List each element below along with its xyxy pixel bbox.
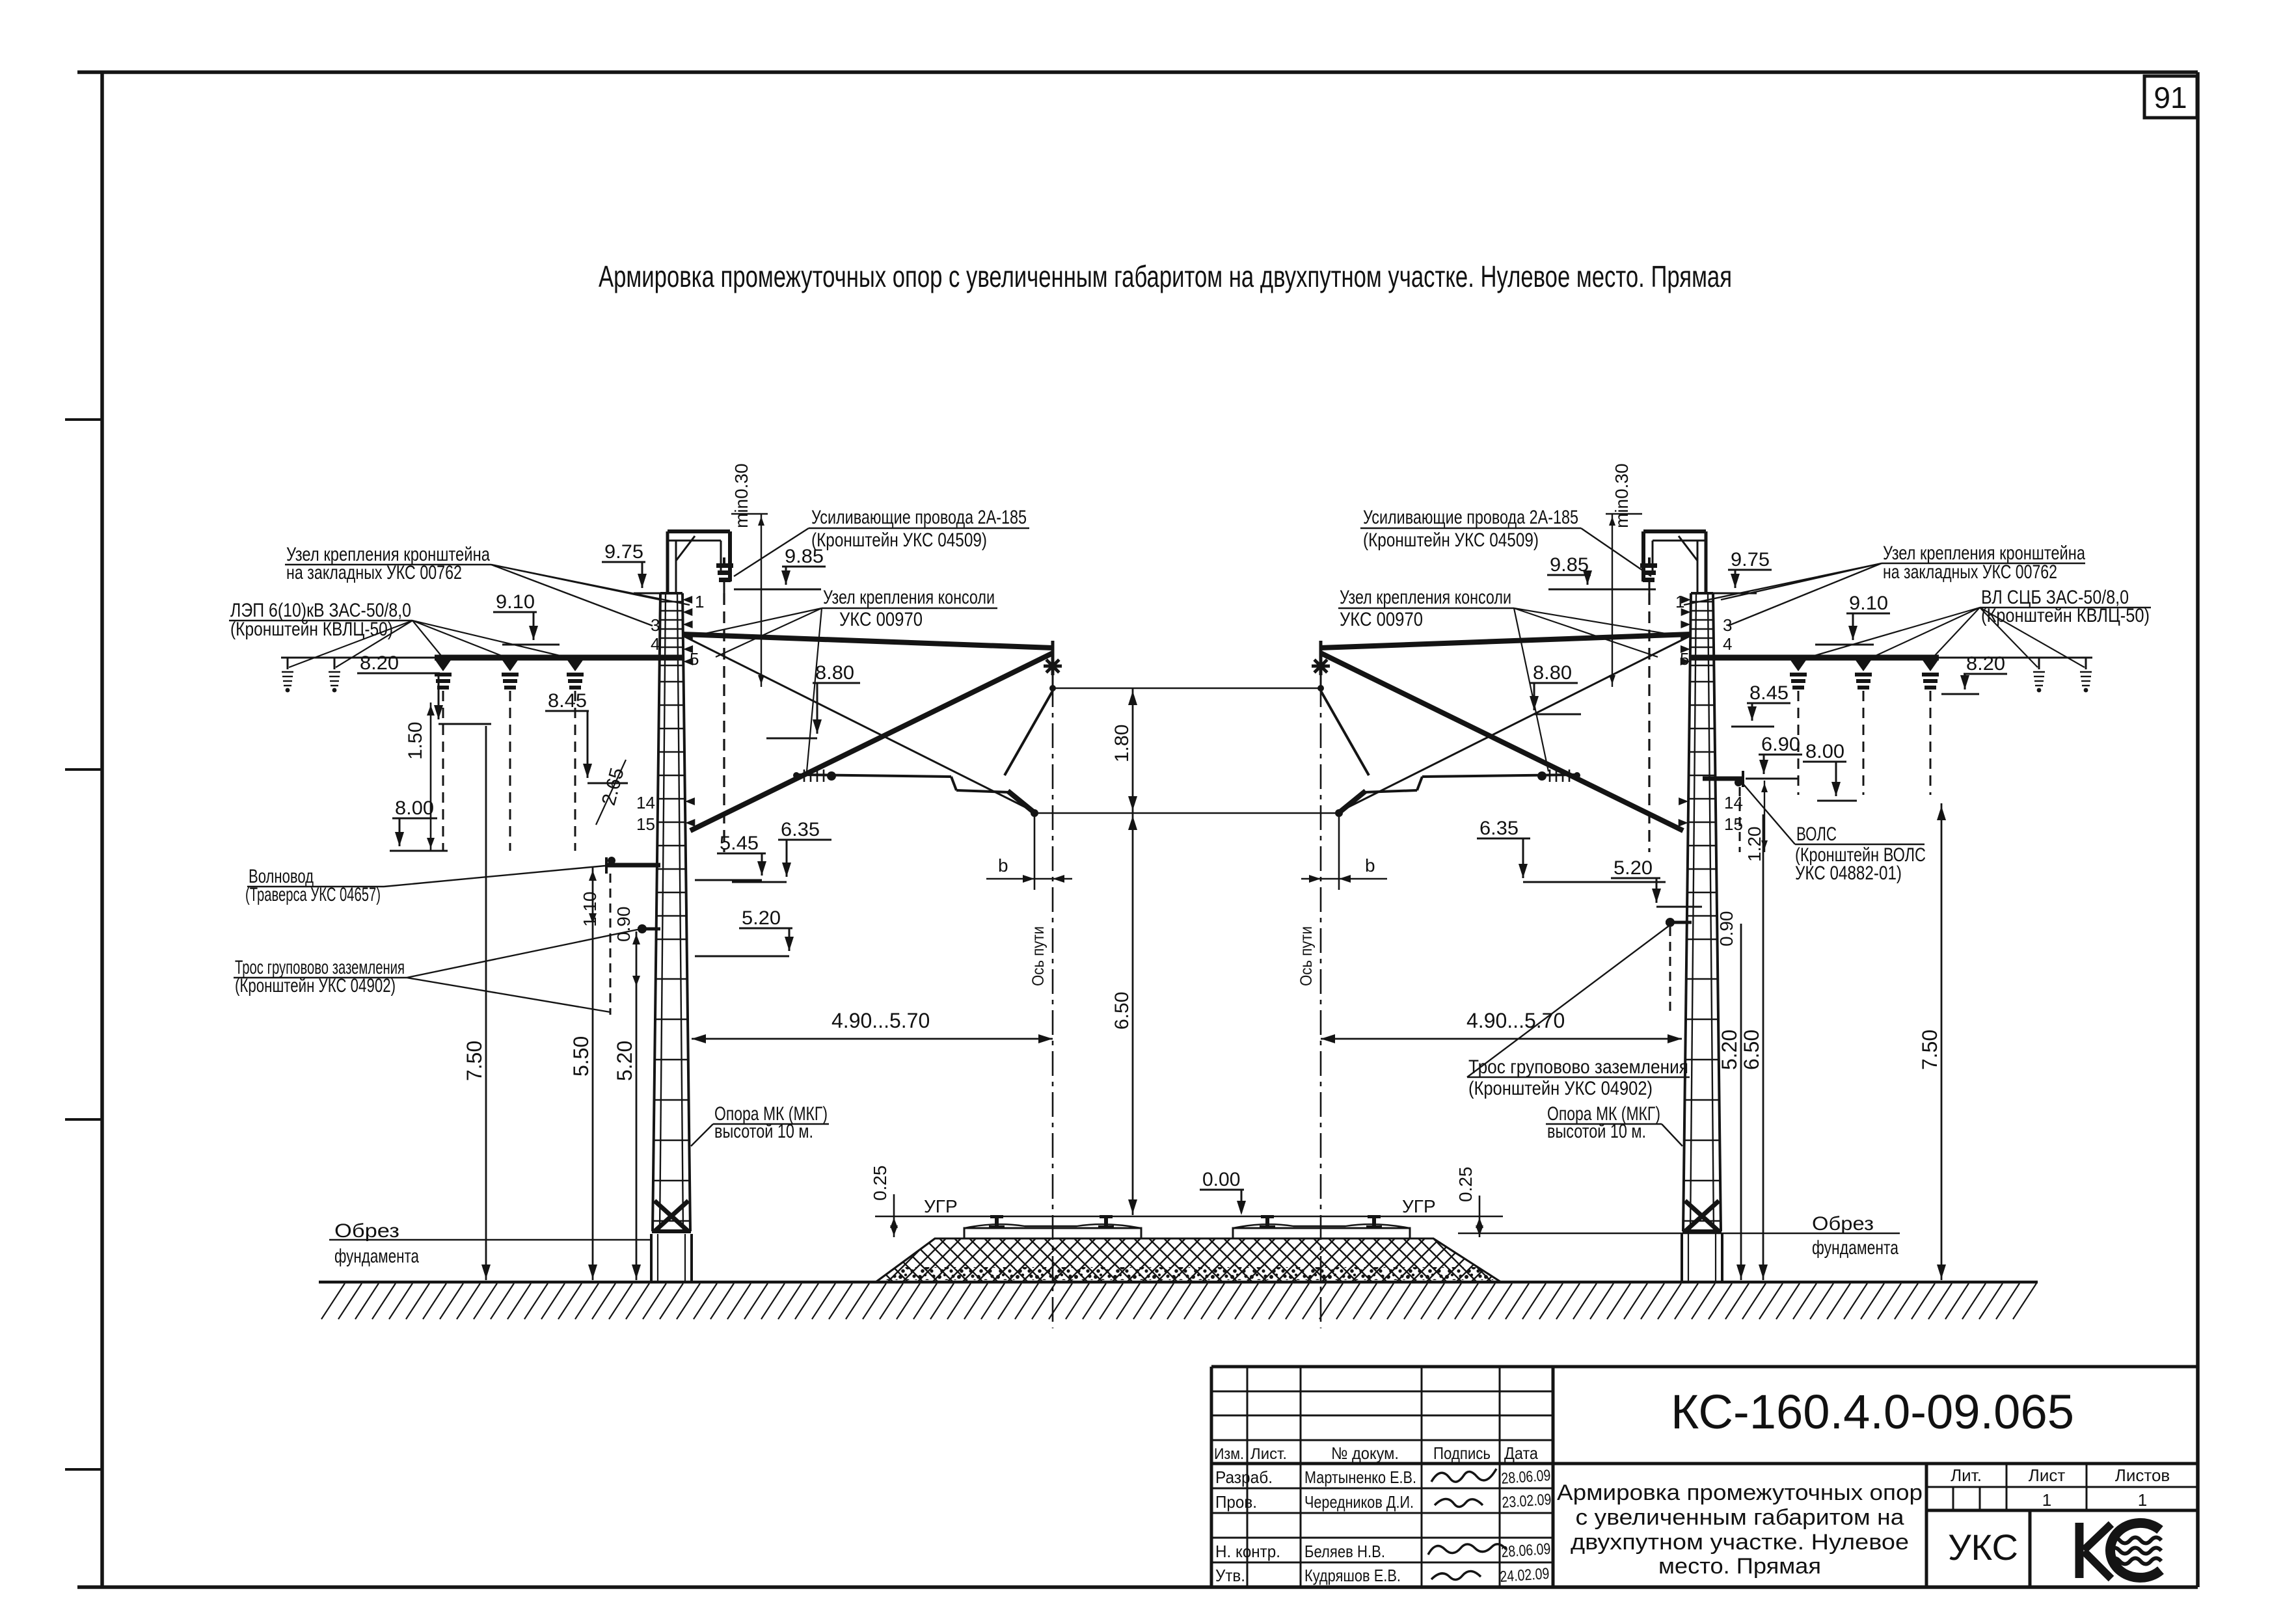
svg-text:ВОЛС: ВОЛС — [1796, 823, 1837, 845]
svg-text:КС-160.4.0-09.065: КС-160.4.0-09.065 — [1671, 1385, 2074, 1439]
svg-text:Пров.: Пров. — [1215, 1492, 1257, 1512]
svg-text:№ докум.: № докум. — [1331, 1443, 1399, 1463]
svg-text:0.90: 0.90 — [614, 907, 634, 943]
svg-text:Обрез: Обрез — [334, 1220, 399, 1242]
svg-text:8.45: 8.45 — [1749, 682, 1789, 704]
svg-text:Лит.: Лит. — [1951, 1465, 1982, 1485]
svg-text:Ось пути: Ось пути — [1297, 926, 1316, 986]
svg-text:Усиливающие провода 2А-185: Усиливающие провода 2А-185 — [1363, 507, 1578, 528]
svg-text:5.45: 5.45 — [720, 833, 759, 854]
svg-text:3: 3 — [651, 615, 660, 635]
svg-text:28.06.09: 28.06.09 — [1501, 1540, 1552, 1561]
svg-text:Н. контр.: Н. контр. — [1215, 1542, 1280, 1561]
svg-text:7.50: 7.50 — [463, 1041, 486, 1081]
svg-text:91: 91 — [2154, 81, 2187, 114]
svg-text:Подпись: Подпись — [1433, 1443, 1491, 1463]
svg-text:0.25: 0.25 — [870, 1166, 890, 1201]
svg-text:1.10: 1.10 — [580, 892, 600, 928]
svg-text:5: 5 — [690, 649, 699, 669]
svg-text:фундамента: фундамента — [1812, 1237, 1898, 1259]
svg-text:28.06.09: 28.06.09 — [1501, 1467, 1552, 1488]
svg-text:24.02.09: 24.02.09 — [1500, 1565, 1550, 1586]
svg-text:Узел крепления консоли: Узел крепления консоли — [823, 587, 995, 608]
svg-text:Усиливающие провода 2А-185: Усиливающие провода 2А-185 — [811, 507, 1027, 528]
svg-text:4: 4 — [651, 634, 660, 654]
svg-text:Армировка промежуточных опор: Армировка промежуточных опор — [1557, 1480, 1923, 1505]
svg-text:9.75: 9.75 — [604, 541, 643, 563]
svg-text:УКС 00970: УКС 00970 — [1340, 609, 1423, 630]
svg-text:b: b — [998, 855, 1008, 876]
svg-text:1.50: 1.50 — [405, 722, 426, 760]
svg-text:1.80: 1.80 — [1111, 725, 1133, 762]
svg-text:6.50: 6.50 — [1740, 1030, 1763, 1070]
svg-text:(Кронштейн УКС 04902): (Кронштейн УКС 04902) — [1468, 1078, 1653, 1099]
svg-text:Мартыненко Е.В.: Мартыненко Е.В. — [1304, 1467, 1416, 1487]
svg-text:Узел крепления консоли: Узел крепления консоли — [1340, 587, 1511, 608]
svg-text:9.85: 9.85 — [1550, 554, 1589, 576]
svg-text:7.50: 7.50 — [1918, 1030, 1941, 1070]
svg-text:8.45: 8.45 — [548, 690, 587, 712]
svg-text:5: 5 — [1680, 649, 1689, 669]
svg-text:9.10: 9.10 — [1849, 593, 1888, 614]
svg-text:Беляев Н.В.: Беляев Н.В. — [1304, 1542, 1385, 1561]
svg-text:фундамента: фундамента — [334, 1246, 419, 1267]
svg-text:3: 3 — [1723, 615, 1732, 635]
svg-text:8.20: 8.20 — [1966, 653, 2005, 675]
svg-text:8.00: 8.00 — [1805, 741, 1844, 762]
svg-text:Ось пути: Ось пути — [1029, 926, 1047, 986]
svg-text:УГР: УГР — [1402, 1196, 1436, 1216]
svg-text:Изм.: Изм. — [1214, 1445, 1244, 1463]
svg-text:4: 4 — [1723, 634, 1732, 654]
svg-text:4.90...5.70: 4.90...5.70 — [831, 1009, 930, 1032]
svg-text:0.25: 0.25 — [1455, 1167, 1476, 1203]
svg-text:9.10: 9.10 — [496, 591, 535, 613]
svg-text:5.20: 5.20 — [1718, 1030, 1741, 1070]
svg-text:место. Прямая: место. Прямая — [1658, 1554, 1821, 1579]
svg-text:15: 15 — [636, 814, 655, 834]
svg-text:Чередников Д.И.: Чередников Д.И. — [1304, 1492, 1414, 1512]
svg-text:b: b — [1365, 855, 1375, 876]
svg-text:Дата: Дата — [1504, 1443, 1538, 1463]
svg-text:(Кронштейн УКС 04509): (Кронштейн УКС 04509) — [1363, 529, 1539, 551]
svg-text:8.20: 8.20 — [360, 652, 399, 674]
svg-text:1.20: 1.20 — [1744, 827, 1764, 863]
svg-text:Армировка промежуточных опор с: Армировка промежуточных опор с увеличенн… — [599, 260, 1732, 293]
svg-text:min0.30: min0.30 — [1612, 463, 1632, 528]
svg-text:6.90: 6.90 — [1761, 734, 1800, 755]
svg-text:4.90...5.70: 4.90...5.70 — [1466, 1009, 1565, 1032]
svg-text:1: 1 — [695, 592, 704, 611]
svg-text:с увеличенным габаритом на: с увеличенным габаритом на — [1576, 1505, 1904, 1530]
svg-text:23.02.09: 23.02.09 — [1502, 1491, 1552, 1512]
svg-text:Разраб.: Разраб. — [1215, 1467, 1273, 1487]
svg-text:14: 14 — [1724, 793, 1743, 812]
svg-text:8.00: 8.00 — [395, 797, 434, 819]
svg-text:9.75: 9.75 — [1731, 549, 1770, 570]
svg-text:14: 14 — [636, 793, 655, 812]
svg-text:0.90: 0.90 — [1716, 911, 1736, 947]
svg-text:1: 1 — [2042, 1490, 2051, 1510]
svg-text:8.80: 8.80 — [1533, 662, 1572, 684]
svg-text:УКС 04882-01): УКС 04882-01) — [1795, 863, 1902, 884]
svg-text:Обрез: Обрез — [1812, 1213, 1874, 1235]
svg-text:УКС: УКС — [1948, 1527, 2018, 1568]
svg-text:(Кронштейн УКС 04509): (Кронштейн УКС 04509) — [811, 529, 987, 551]
svg-text:Трос груповово заземления: Трос груповово заземления — [1468, 1056, 1688, 1078]
svg-text:Кудряшов Е.В.: Кудряшов Е.В. — [1304, 1566, 1401, 1585]
svg-text:6.50: 6.50 — [1111, 992, 1133, 1030]
svg-text:6.35: 6.35 — [781, 819, 820, 840]
svg-text:6.35: 6.35 — [1479, 818, 1519, 839]
svg-text:8.80: 8.80 — [815, 662, 854, 684]
svg-text:Лист: Лист — [2029, 1465, 2066, 1485]
svg-text:5.20: 5.20 — [1614, 857, 1653, 879]
svg-text:1: 1 — [2138, 1490, 2147, 1510]
svg-text:5.50: 5.50 — [569, 1036, 593, 1077]
svg-text:на закладных УКС 00762: на закладных УКС 00762 — [1883, 561, 2057, 583]
svg-text:5.20: 5.20 — [742, 907, 781, 929]
svg-text:Утв.: Утв. — [1215, 1566, 1245, 1585]
svg-text:0.00: 0.00 — [1202, 1169, 1240, 1190]
svg-text:УГР: УГР — [924, 1196, 958, 1216]
svg-text:1: 1 — [1675, 592, 1684, 611]
svg-text:min0.30: min0.30 — [731, 463, 751, 528]
svg-text:15: 15 — [1724, 814, 1743, 834]
svg-text:двухпутном участке. Нулевое: двухпутном участке. Нулевое — [1571, 1530, 1909, 1555]
svg-text:Лист.: Лист. — [1250, 1445, 1287, 1463]
svg-text:УКС 00970: УКС 00970 — [839, 609, 923, 630]
svg-text:Листов: Листов — [2115, 1465, 2170, 1485]
svg-text:5.20: 5.20 — [613, 1041, 636, 1081]
